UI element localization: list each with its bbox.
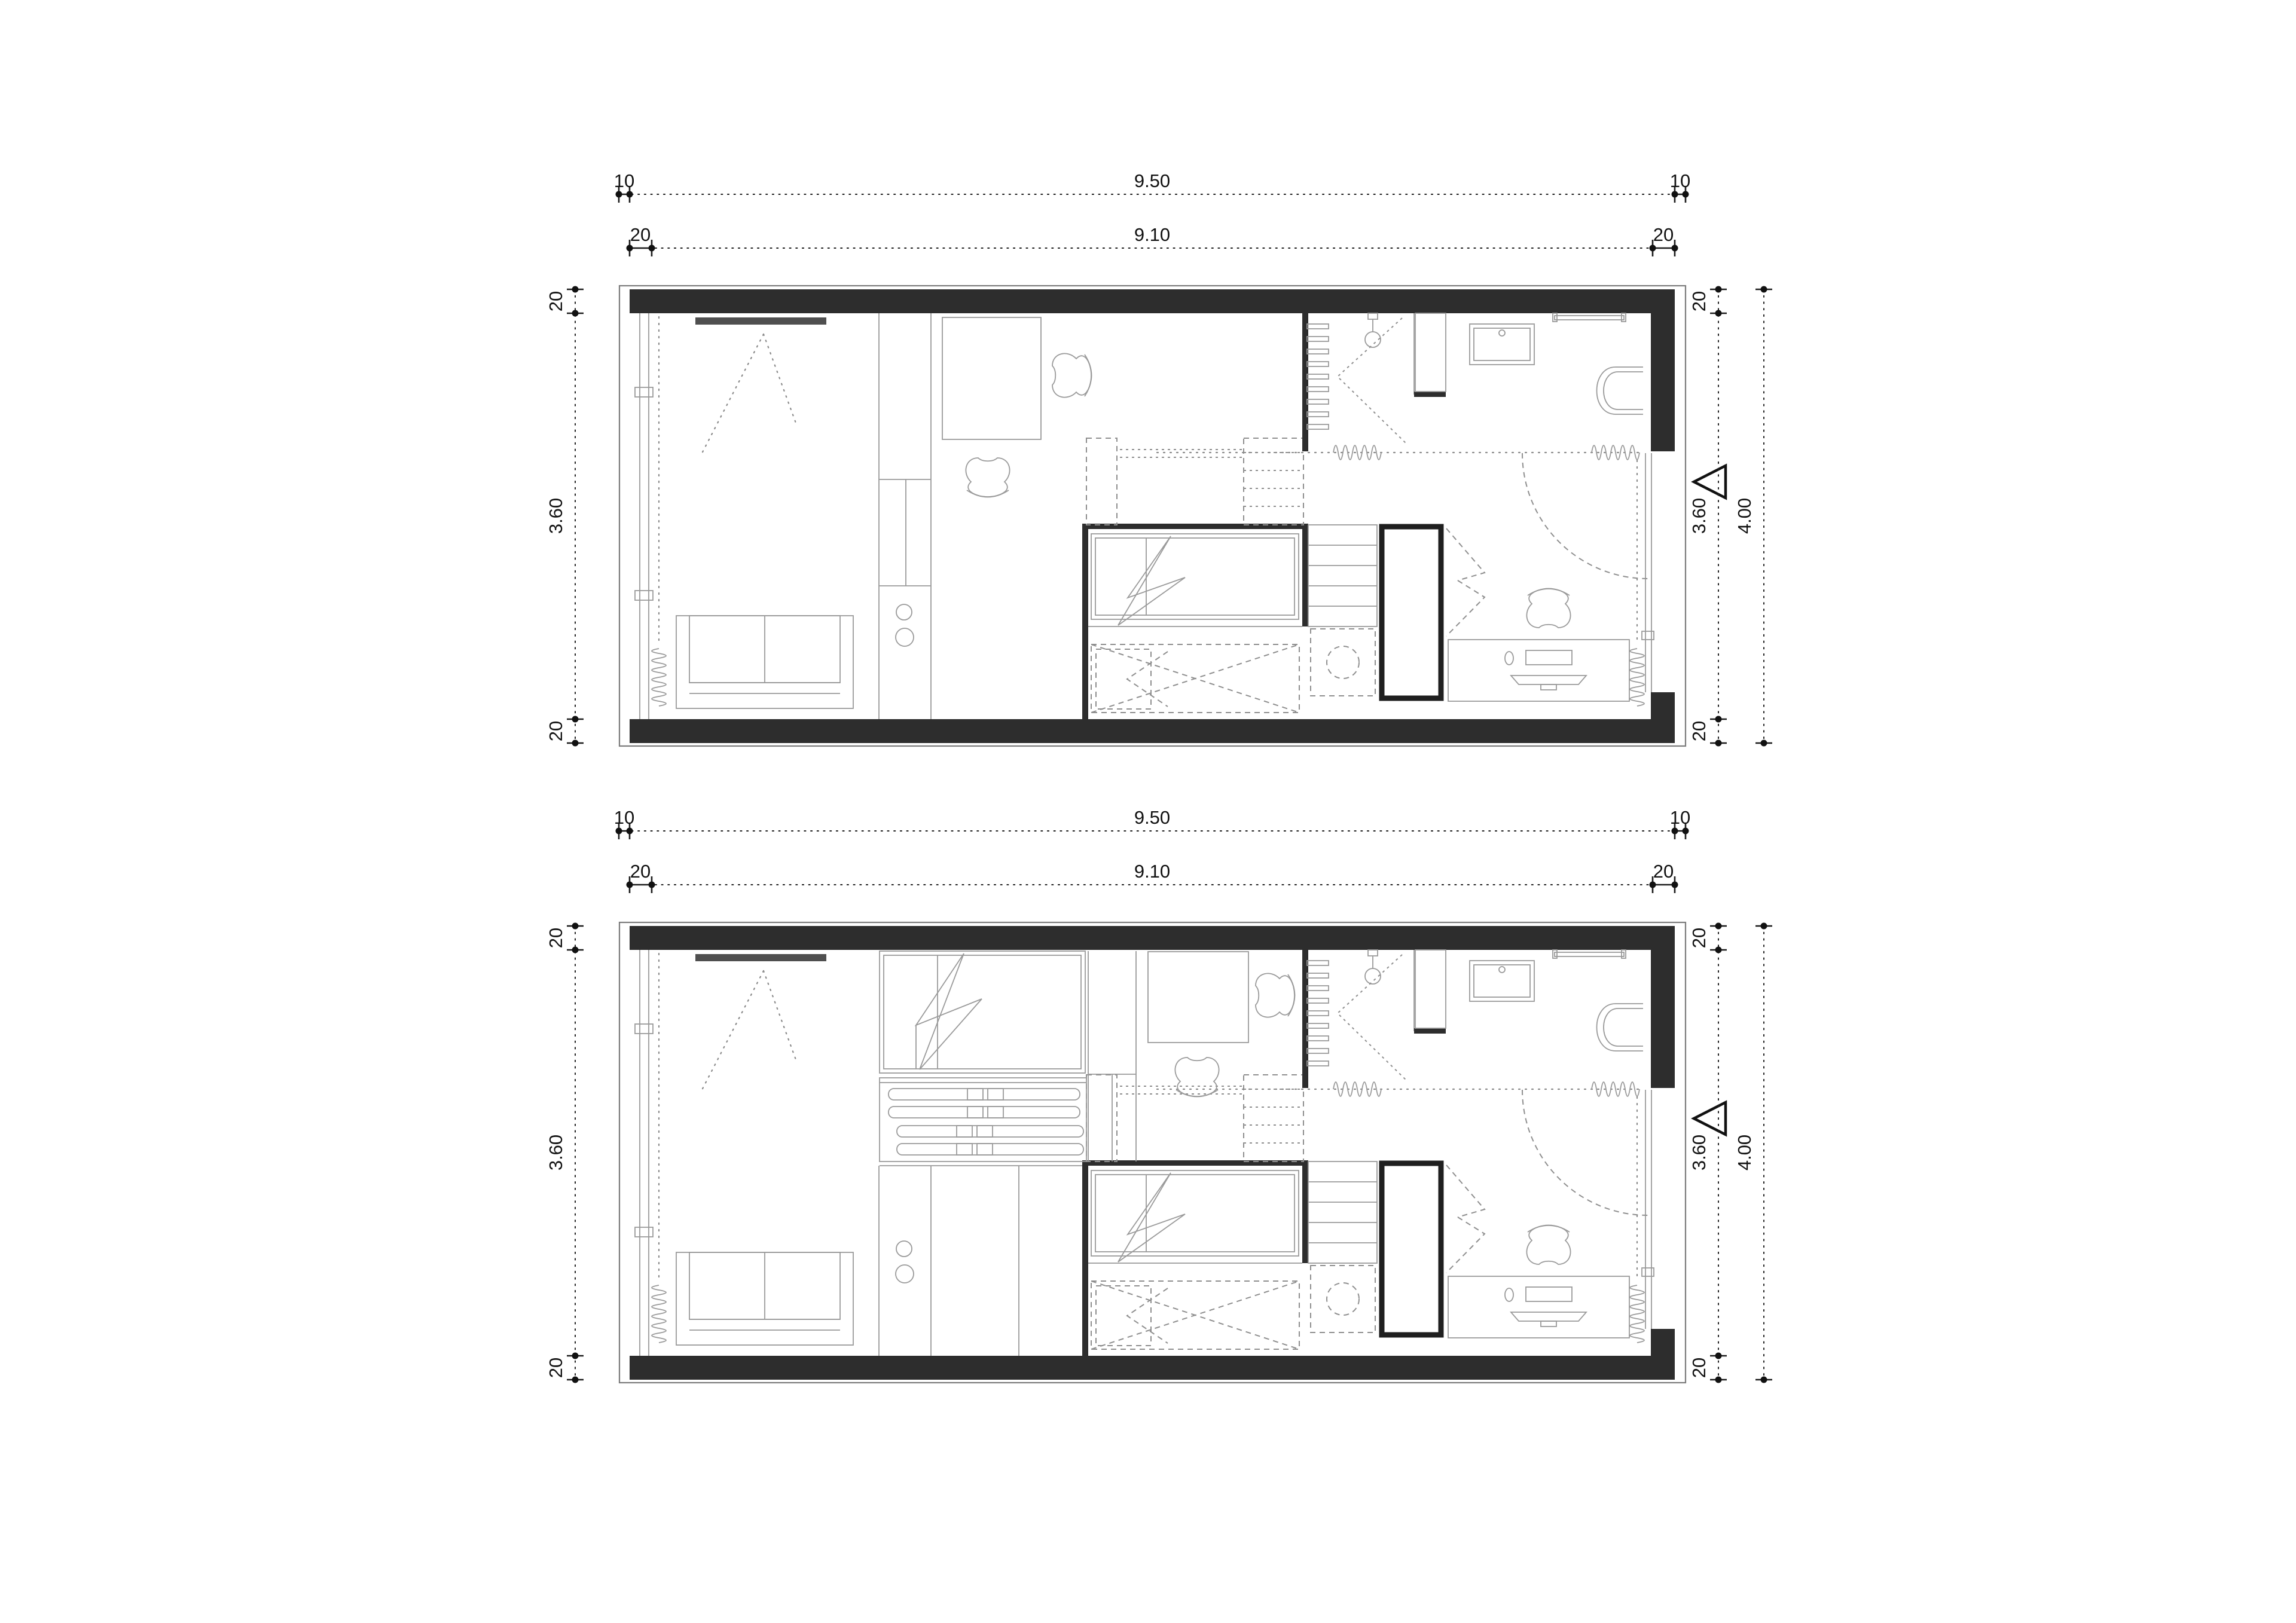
dim-10-left: 10 [614, 170, 634, 191]
dim-910: 9.10 [1134, 861, 1170, 882]
dim-v-left-20t: 20 [545, 291, 566, 311]
dim-v-left-20b: 20 [545, 721, 566, 741]
dim-950: 9.50 [1134, 807, 1170, 828]
dim-v-right-20t: 20 [1689, 291, 1709, 311]
dim-910: 9.10 [1134, 224, 1170, 245]
dim-v-right-20b: 20 [1689, 721, 1709, 741]
floor-plan-upper: 10 9.50 10 20 9.10 20 20 3.60 20 20 3.60… [545, 170, 1772, 747]
dim-950: 9.50 [1134, 170, 1170, 191]
dim-v-left-360: 3.60 [545, 1135, 566, 1170]
chair-at-table [1052, 353, 1092, 397]
kitchen-cabinets [879, 1166, 1082, 1356]
dim-10-right: 10 [1670, 807, 1690, 828]
dim-10-left: 10 [614, 807, 634, 828]
dim-v-left-20b: 20 [545, 1358, 566, 1378]
dim-20-left: 20 [630, 224, 651, 245]
floor-plan-lower: 10 9.50 10 20 9.10 20 20 3.60 20 20 3.60… [545, 807, 1772, 1383]
work-table [942, 317, 1041, 439]
dimension-labels: 10 9.50 10 20 9.10 20 20 3.60 20 20 3.60… [545, 170, 1755, 741]
floor-plan-sheet: 10 9.50 10 20 9.10 20 20 3.60 20 20 3.60… [0, 0, 2296, 1623]
dim-v-right-360: 3.60 [1689, 498, 1709, 534]
dim-20-right: 20 [1653, 861, 1674, 882]
double-bed [880, 951, 1085, 1073]
chair-extra [1175, 1057, 1219, 1097]
chair-at-desk [1256, 973, 1295, 1017]
dim-v-total-400: 4.00 [1734, 1135, 1755, 1170]
divider-column [1088, 951, 1136, 1162]
dim-v-right-20t: 20 [1689, 928, 1709, 948]
dim-v-left-360: 3.60 [545, 498, 566, 534]
chair-extra [966, 458, 1009, 497]
desk-table [1148, 952, 1248, 1043]
dimension-labels: 10 9.50 10 20 9.10 20 20 3.60 20 20 3.60… [545, 807, 1755, 1378]
dim-v-left-20t: 20 [545, 928, 566, 948]
dim-v-right-20b: 20 [1689, 1358, 1709, 1378]
kitchen-wardrobe-column [879, 313, 931, 719]
dim-20-left: 20 [630, 861, 651, 882]
ski-shelf [880, 1078, 1086, 1162]
dim-v-right-360: 3.60 [1689, 1135, 1709, 1170]
dim-10-right: 10 [1670, 170, 1690, 191]
dim-20-right: 20 [1653, 224, 1674, 245]
dim-v-total-400: 4.00 [1734, 498, 1755, 534]
